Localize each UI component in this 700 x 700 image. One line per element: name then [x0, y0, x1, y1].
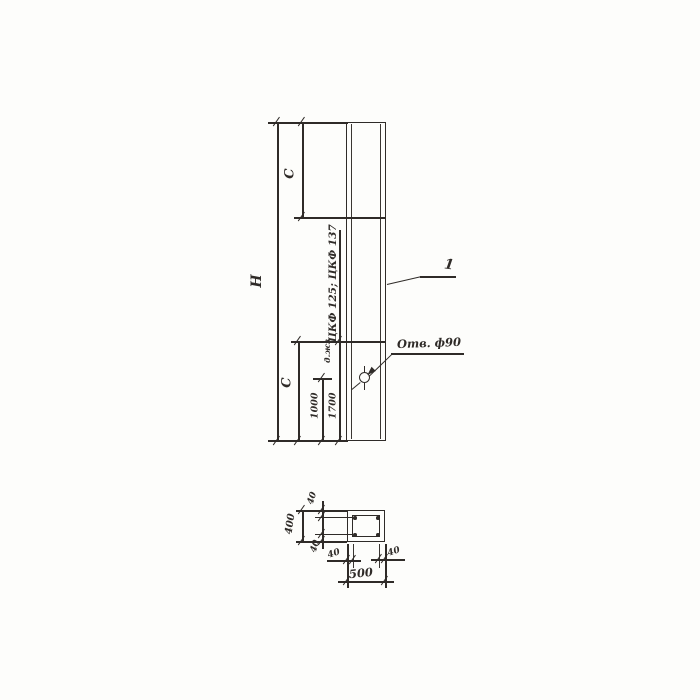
drawing-canvas: Отв. ф90 1 H C C 1000 1700 ЦКФ 125; ЦКФ … — [0, 0, 700, 700]
dim-line-1000 — [322, 378, 324, 441]
bottom-segment-label: C — [281, 370, 294, 396]
item-leader-line — [387, 276, 420, 285]
column-inner-edge-right — [380, 124, 381, 439]
hole-axis-tick-bottom — [364, 383, 365, 390]
column-marks-label: ЦКФ 125; ЦКФ 137 — [328, 222, 339, 344]
cover-top-label: 40 — [306, 488, 321, 510]
dim-1700-label: 1700 — [328, 386, 338, 426]
overall-height-label: H — [250, 268, 264, 294]
item-number-label: 1 — [439, 257, 459, 273]
section-height-label: 400 — [284, 509, 298, 538]
top-extension-line — [268, 122, 348, 124]
dim-line-overall-height — [277, 122, 279, 441]
rebar-dot — [376, 516, 380, 520]
hole-callout-underline — [391, 353, 464, 355]
hole-callout-label: Отв. ф90 — [393, 337, 465, 351]
joint-line-upper — [294, 217, 385, 219]
dim-line-c-bottom — [298, 341, 300, 441]
dim-1000-label: 1000 — [310, 386, 320, 426]
rebar-dot — [376, 533, 380, 537]
column-inner-edge-left — [351, 124, 352, 439]
section-width-label: 500 — [345, 566, 376, 581]
item-leader-shelf — [420, 276, 456, 278]
dim-line-c-top — [302, 122, 304, 218]
rebar-dot — [353, 516, 357, 520]
top-segment-label: C — [284, 161, 297, 187]
aux-label: д.жз — [323, 334, 331, 368]
rebar-dot — [353, 533, 357, 537]
hole-level-extension-line — [313, 378, 332, 380]
